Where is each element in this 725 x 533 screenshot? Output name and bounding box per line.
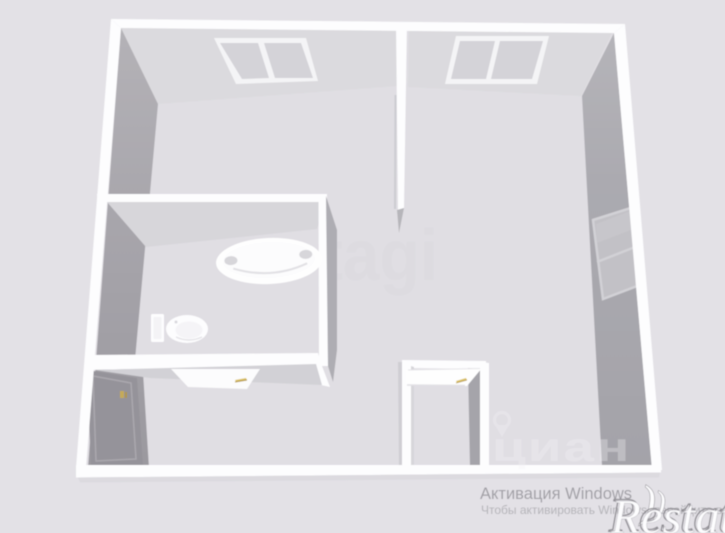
svg-text:Restate: Restate [610,489,725,533]
svg-text:циан: циан [492,425,631,471]
svg-text:tagi: tagi [321,216,438,296]
